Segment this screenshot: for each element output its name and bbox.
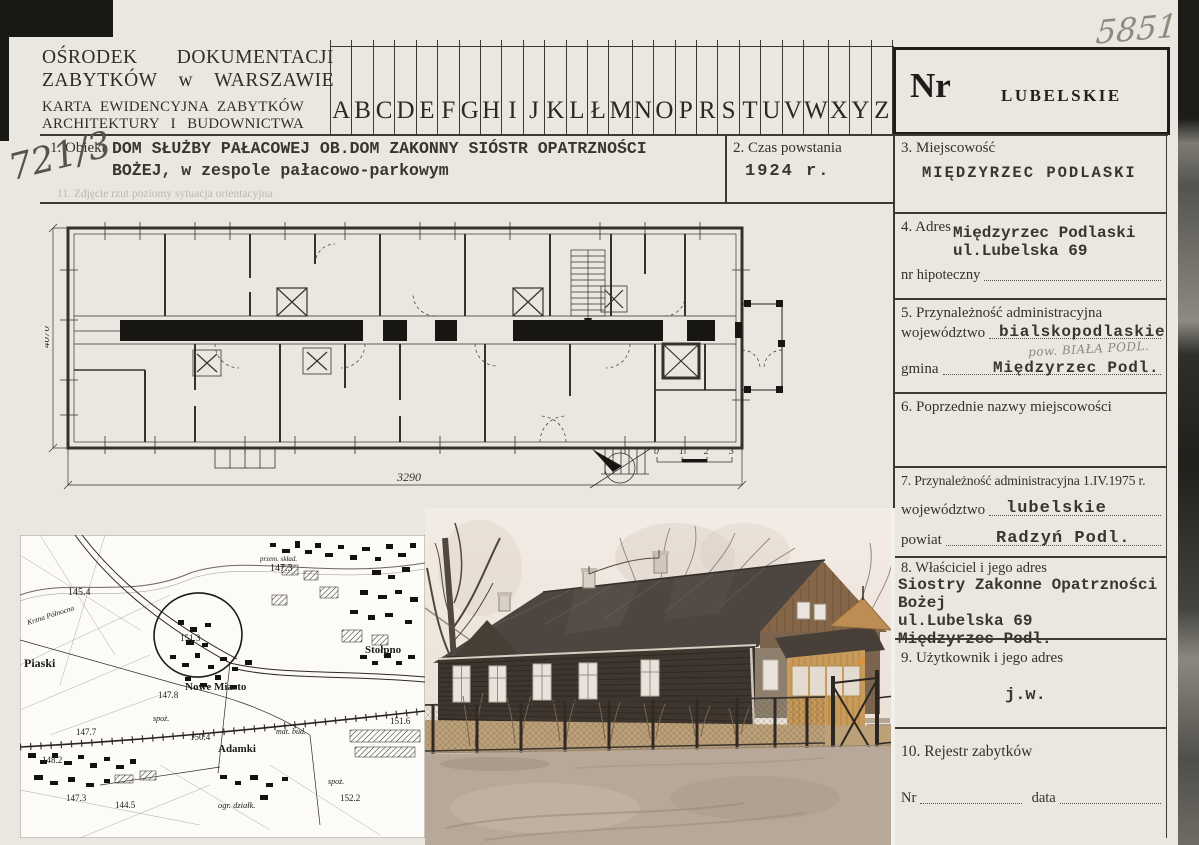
svg-text:Adamki: Adamki (218, 743, 256, 755)
svg-text:Nowe Miasto: Nowe Miasto (185, 681, 247, 693)
alphabet-cell: F (438, 40, 459, 135)
nr-label: Nr (910, 66, 951, 106)
header-institution: OŚRODEK DOKUMENTACJI ZABYTKÓW w WARSZAWI… (42, 46, 334, 133)
dotted-line (1060, 803, 1161, 804)
svg-text:1: 1 (679, 446, 684, 457)
floor-plan-drawing: 4070 3290 0 1 2 3 (45, 200, 880, 500)
alphabet-cell: V (783, 40, 804, 135)
dotted-line (920, 803, 1021, 804)
svg-text:150.4: 150.4 (190, 732, 211, 742)
plan-dim-bottom-label: 3290 (396, 470, 421, 484)
svg-text:147.3: 147.3 (66, 793, 87, 803)
rule-s1-s2 (725, 135, 727, 202)
rule-s7-bottom (893, 556, 1167, 558)
svg-text:Piaski: Piaski (24, 656, 56, 670)
s5-gmina-row: gmina Międzyrzec Podl. (901, 356, 1163, 378)
plan-entry-steps (215, 448, 649, 474)
s4-hipoteczny-row: nr hipoteczny (901, 264, 1163, 284)
svg-text:147.7: 147.7 (76, 727, 97, 737)
building-photo (425, 508, 895, 845)
site-map: 145.4 147.3 Piaski Stołpno Nowe Miasto 1… (20, 535, 425, 838)
alphabet-cell: W (804, 40, 829, 135)
svg-text:mat. bud.: mat. bud. (276, 727, 306, 736)
alphabet-cell: Ł (588, 40, 609, 135)
rule-s6-bottom (893, 466, 1167, 468)
rule-right-column-right (1166, 135, 1167, 838)
s6-label: 6. Poprzednie nazwy miejscowości (901, 399, 1112, 416)
s3-value: MIĘDZYRZEC PODLASKI (922, 164, 1137, 182)
s9-label: 9. Użytkownik i jego adres (901, 650, 1063, 667)
s7-label: 7. Przynależność administracyjna 1.IV.19… (901, 473, 1145, 489)
alphabet-cell: R (697, 40, 718, 135)
s1-value-line2: BOŻEJ, w zespole pałacowo-parkowym (112, 161, 449, 180)
card-title-line1: KARTA EWIDENCYJNA ZABYTKÓW (42, 99, 304, 116)
alphabet-cell: Z (872, 40, 893, 135)
rule-s8-bottom-strikethrough (893, 638, 1167, 640)
svg-text:spoż.: spoż. (328, 777, 344, 786)
s2-value: 1924 r. (745, 162, 830, 181)
scan-edge-right (1178, 0, 1199, 845)
photo-color-cast (425, 508, 895, 845)
s7-powiat-row: powiat Radzyń Podl. (901, 525, 1163, 549)
plan-porch-extension (735, 300, 785, 393)
alphabet-cell: J (524, 40, 545, 135)
org-name-line1: OŚRODEK DOKUMENTACJI (42, 46, 334, 69)
s4-value-line2: ul.Lubelska 69 (953, 242, 1087, 260)
svg-text:152.2: 152.2 (340, 793, 360, 803)
s5-wojewodztwo-row: województwo bialskopodlaskie (901, 320, 1163, 342)
org-name-line2: ZABYTKÓW w WARSZAWIE (42, 69, 334, 92)
s10-registry-row: Nr data (901, 785, 1163, 807)
plan-scale-bar (657, 457, 732, 463)
alphabet-cell: T (740, 40, 761, 135)
s11-label: 11. Zdjęcie rzut poziomy sytuacja orient… (57, 188, 272, 200)
alphabet-cell: I (502, 40, 523, 135)
alphabet-cell: D (395, 40, 416, 135)
svg-text:147.8: 147.8 (158, 690, 179, 700)
alphabet-cell: L (567, 40, 588, 135)
alphabet-cell: K (545, 40, 566, 135)
s5-value2: Międzyrzec Podl. (993, 359, 1159, 377)
s10-label: 10. Rejestr zabytków (901, 743, 1032, 761)
s7-wojewodztwo-row: województwo lubelskie (901, 495, 1163, 519)
svg-text:3: 3 (728, 446, 734, 457)
s4-value-line1: Międzyrzec Podlaski (953, 224, 1135, 242)
svg-text:Stołpno: Stołpno (365, 644, 402, 656)
s4-label: 4. Adres (901, 219, 951, 236)
svg-text:147.3: 147.3 (270, 563, 293, 574)
svg-text:148.2: 148.2 (42, 755, 62, 765)
scan-edge-left (0, 0, 9, 141)
alphabet-cell: O (654, 40, 675, 135)
plan-corridor (74, 316, 736, 344)
alphabet-cell: H (481, 40, 502, 135)
svg-text:spoż.: spoż. (153, 714, 169, 723)
svg-text:151.3: 151.3 (180, 633, 201, 643)
rule-s3-bottom (893, 212, 1167, 214)
svg-text:ogr. działk.: ogr. działk. (218, 800, 256, 810)
rule-s9-bottom (893, 727, 1167, 729)
svg-text:0: 0 (654, 446, 659, 457)
plan-dim-left-label: 4070 (45, 326, 52, 349)
rule-s4-bottom (893, 298, 1167, 300)
s4-sub-label: nr hipoteczny (901, 267, 980, 284)
alphabet-cell: P (676, 40, 697, 135)
plan-north-arrow (590, 447, 653, 488)
voivodeship-stamp: LUBELSKIE (1001, 86, 1122, 106)
rule-header-bottom (40, 134, 1168, 136)
s7-value1: lubelskie (1006, 499, 1107, 518)
heritage-record-card: OŚRODEK DOKUMENTACJI ZABYTKÓW w WARSZAWI… (0, 0, 1199, 845)
svg-text:przem. skład.: przem. skład. (259, 555, 297, 563)
s7-value2: Radzyń Podl. (996, 529, 1130, 548)
alphabet-cell: M (609, 40, 632, 135)
dotted-line (984, 280, 1161, 281)
alphabet-top-rule (330, 46, 894, 47)
plan-stairs (571, 250, 605, 330)
alphabet-cell: B (352, 40, 373, 135)
svg-text:144.5: 144.5 (115, 800, 136, 810)
rule-s5-bottom (893, 392, 1167, 394)
alphabet-cell: S (718, 40, 739, 135)
alphabet-cell: A (330, 40, 352, 135)
s1-value-line1: DOM SŁUŻBY PAŁACOWEJ OB.DOM ZAKONNY SIÓS… (112, 139, 647, 158)
s2-label: 2. Czas powstania (733, 140, 842, 157)
alphabet-index-strip: A B C D E F G H I J K L Ł M N O P R S T … (330, 40, 893, 135)
handwritten-number: 5851 (1094, 6, 1178, 52)
alphabet-cell: C (374, 40, 395, 135)
s8-label: 8. Właściciel i jego adres (901, 560, 1047, 577)
s9-value: j.w. (1005, 686, 1046, 705)
svg-text:145.4: 145.4 (68, 587, 91, 598)
alphabet-cell: X (829, 40, 850, 135)
alphabet-cell: N (633, 40, 654, 135)
alphabet-cell: Y (850, 40, 871, 135)
alphabet-cell: G (460, 40, 481, 135)
photo-right-border (891, 508, 895, 845)
scan-edge-top (0, 0, 113, 37)
nr-box: Nr LUBELSKIE (893, 47, 1170, 135)
alphabet-cell: E (417, 40, 438, 135)
svg-text:2: 2 (704, 446, 709, 457)
svg-text:151.6: 151.6 (390, 716, 411, 726)
alphabet-cell: U (761, 40, 782, 135)
s3-label: 3. Miejscowość (901, 140, 995, 157)
